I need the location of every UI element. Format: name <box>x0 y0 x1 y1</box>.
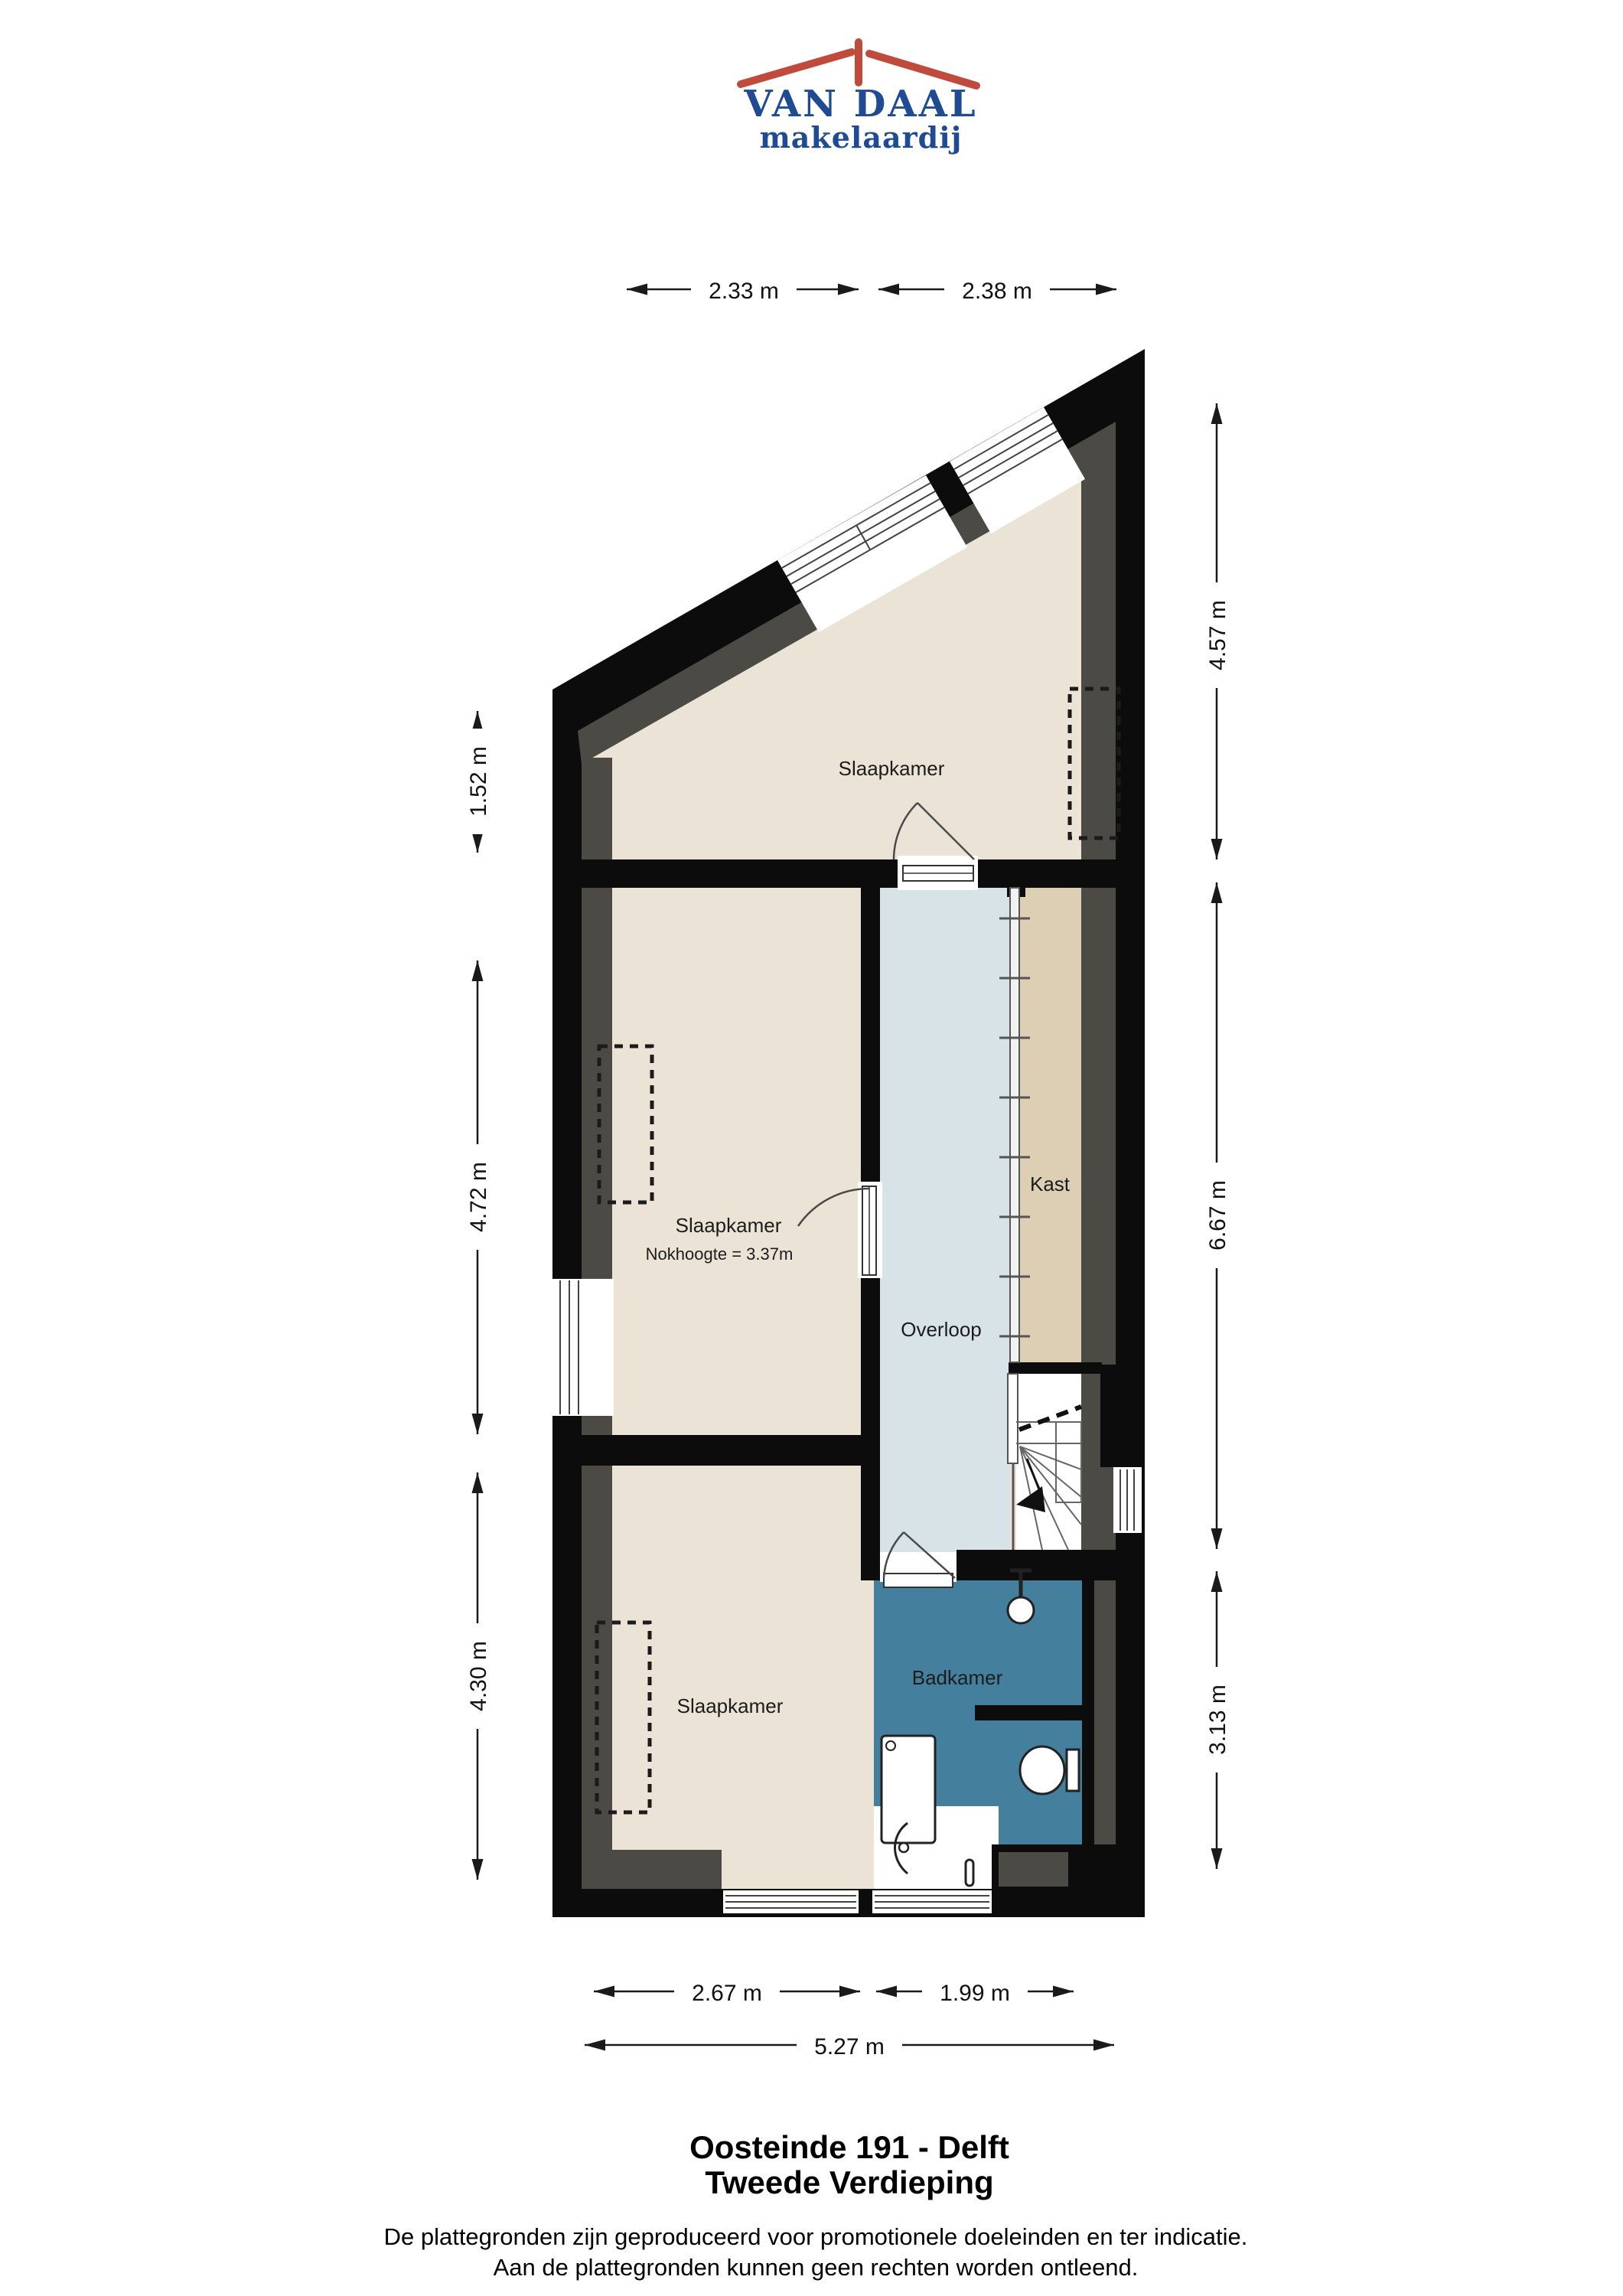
disclaimer-line-2: Aan de plattegronden kunnen geen rechten… <box>494 2254 1139 2281</box>
room-label-bedroom-top: Slaapkamer <box>839 757 945 780</box>
dim-left-1: 1.52 m <box>466 746 491 817</box>
slope-band-right-bath <box>1094 1580 1116 1852</box>
wall-stair-pier <box>1100 1365 1116 1467</box>
wall-toilet-nook <box>975 1705 1082 1720</box>
shower-drain-icon <box>966 1860 973 1886</box>
page-title-address: Oosteinde 191 - Delft <box>689 2129 1009 2165</box>
slope-band-right-top <box>1081 459 1116 859</box>
toilet-icon <box>1020 1746 1064 1794</box>
room-label-closet: Kast <box>1030 1172 1071 1195</box>
dim-bottom-total: 5.27 m <box>814 2034 885 2060</box>
slope-band-bottom-right <box>999 1852 1068 1887</box>
wall-top-bedroom-right <box>978 859 1116 888</box>
room-label-landing: Overloop <box>901 1318 982 1341</box>
staircase <box>1008 1374 1081 1550</box>
logo-tagline: makelaardij <box>760 120 963 155</box>
dim-bottom-1: 2.67 m <box>692 1981 762 2006</box>
dim-right-2: 6.67 m <box>1205 1180 1230 1251</box>
room-note-ridge-height: Nokhoogte = 3.37m <box>646 1244 794 1264</box>
logo-wordmark: VAN DAAL <box>743 83 977 126</box>
wall-bedroom-landing-lower <box>861 1275 880 1580</box>
dim-top-1: 2.33 m <box>709 279 779 304</box>
sink-icon <box>1008 1597 1034 1623</box>
right-window <box>1113 1467 1142 1533</box>
dim-left-2: 4.72 m <box>466 1162 491 1232</box>
dim-top-2: 2.38 m <box>962 279 1032 304</box>
logo-roof-right-icon <box>869 54 976 86</box>
dim-right-1: 4.57 m <box>1205 600 1230 670</box>
slope-band-bottom-left <box>582 1850 722 1889</box>
disclaimer-line-1: De plattegronden zijn geproduceerd voor … <box>384 2223 1248 2250</box>
page-title-floor: Tweede Verdieping <box>705 2164 993 2200</box>
logo: VAN DAAL makelaardij <box>741 42 978 155</box>
room-label-bathroom: Badkamer <box>912 1666 1003 1689</box>
wall-bathroom-right <box>1082 1580 1094 1889</box>
wall-top-bedroom-left <box>570 859 898 888</box>
bottom-windows <box>723 1890 992 1913</box>
dim-bottom-2: 1.99 m <box>940 1981 1010 2006</box>
room-label-bedroom-bottom: Slaapkamer <box>677 1694 784 1717</box>
landing-floor <box>880 888 1010 1554</box>
wall-mid-bottom-bedroom <box>570 1435 861 1466</box>
dim-left-3: 4.30 m <box>466 1641 491 1711</box>
logo-roof-left-icon <box>741 52 852 84</box>
toilet-tank-icon <box>1067 1750 1079 1791</box>
dim-right-3: 3.13 m <box>1205 1684 1230 1755</box>
room-label-bedroom-middle: Slaapkamer <box>676 1214 782 1237</box>
wall-closet-stairs <box>1009 1362 1102 1374</box>
floor-plan-canvas: VAN DAAL makelaardij <box>0 0 1623 2296</box>
floorplan-page: VAN DAAL makelaardij <box>0 0 1623 2296</box>
washer-icon <box>882 1736 935 1843</box>
left-window <box>552 1279 614 1416</box>
closet-floor <box>1019 888 1081 1362</box>
wall-bathroom-top <box>957 1550 1116 1580</box>
wall-bedroom-landing-upper <box>861 888 880 1182</box>
